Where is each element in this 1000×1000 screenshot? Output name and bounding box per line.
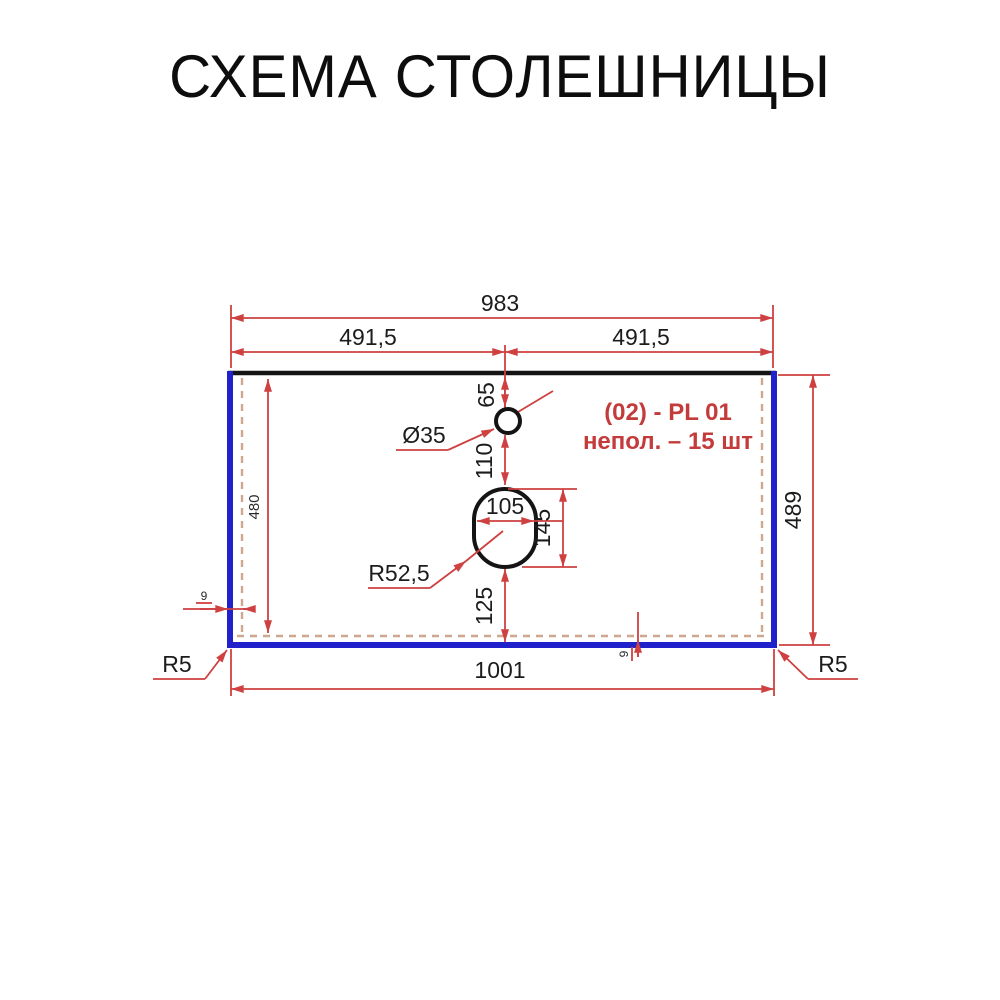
corner-radius-left-label: R5 [162, 651, 191, 677]
dim-faucet-offset-value: 65 [473, 382, 499, 408]
corner-radius-right-arrow [778, 650, 808, 679]
part-quantity-label: непол. – 15 шт [583, 428, 753, 455]
dim-faucet-to-drain-value: 110 [471, 443, 497, 480]
corner-radius-left: R5 [153, 650, 227, 679]
faucet-leader-tail-upper [518, 391, 553, 412]
dim-bottom-width-value: 1001 [474, 657, 525, 683]
dim-edge-band-bottom-value: 9 [617, 650, 631, 657]
part-annotation: (02) - PL 01 непол. – 15 шт [583, 399, 753, 455]
dim-outer-height: 489 [778, 375, 830, 645]
corner-radius-left-arrow [205, 650, 227, 679]
faucet-hole-diameter-label: Ø35 [402, 422, 445, 448]
drain-hole-group: 105 145 R52,5 [368, 489, 577, 588]
dim-bottom-width: 1001 [231, 649, 774, 696]
drain-radius-label: R52,5 [368, 560, 429, 586]
dim-faucet-to-drain: 110 [471, 435, 505, 485]
dim-drain-height-value: 145 [529, 509, 555, 547]
dim-top-width-value: 983 [481, 290, 519, 316]
dim-drain-width-value: 105 [486, 493, 524, 519]
countertop-drawing-page: СХЕМА СТОЛЕШНИЦЫ 983 [0, 0, 1000, 1000]
dim-faucet-offset: 65 [473, 377, 505, 408]
dim-inner-height-value: 480 [246, 494, 263, 519]
dim-half-right-value: 491,5 [612, 324, 670, 350]
dim-top-width: 983 [231, 290, 773, 368]
drain-radius-arrow [430, 561, 466, 588]
dim-inner-height: 480 [246, 379, 268, 633]
dim-half-left-value: 491,5 [339, 324, 397, 350]
corner-radius-right: R5 [778, 650, 858, 679]
dim-drain-to-bottom: 125 [471, 569, 505, 642]
faucet-hole [496, 409, 520, 433]
dim-drain-to-bottom-value: 125 [471, 587, 497, 625]
dim-outer-height-value: 489 [780, 491, 806, 529]
corner-radius-right-label: R5 [818, 651, 847, 677]
part-code-label: (02) - PL 01 [604, 399, 732, 426]
dim-edge-band-left-value: 9 [201, 589, 208, 603]
countertop-diagram: 983 491,5 491,5 65 Ø35 110 [0, 0, 1000, 1000]
